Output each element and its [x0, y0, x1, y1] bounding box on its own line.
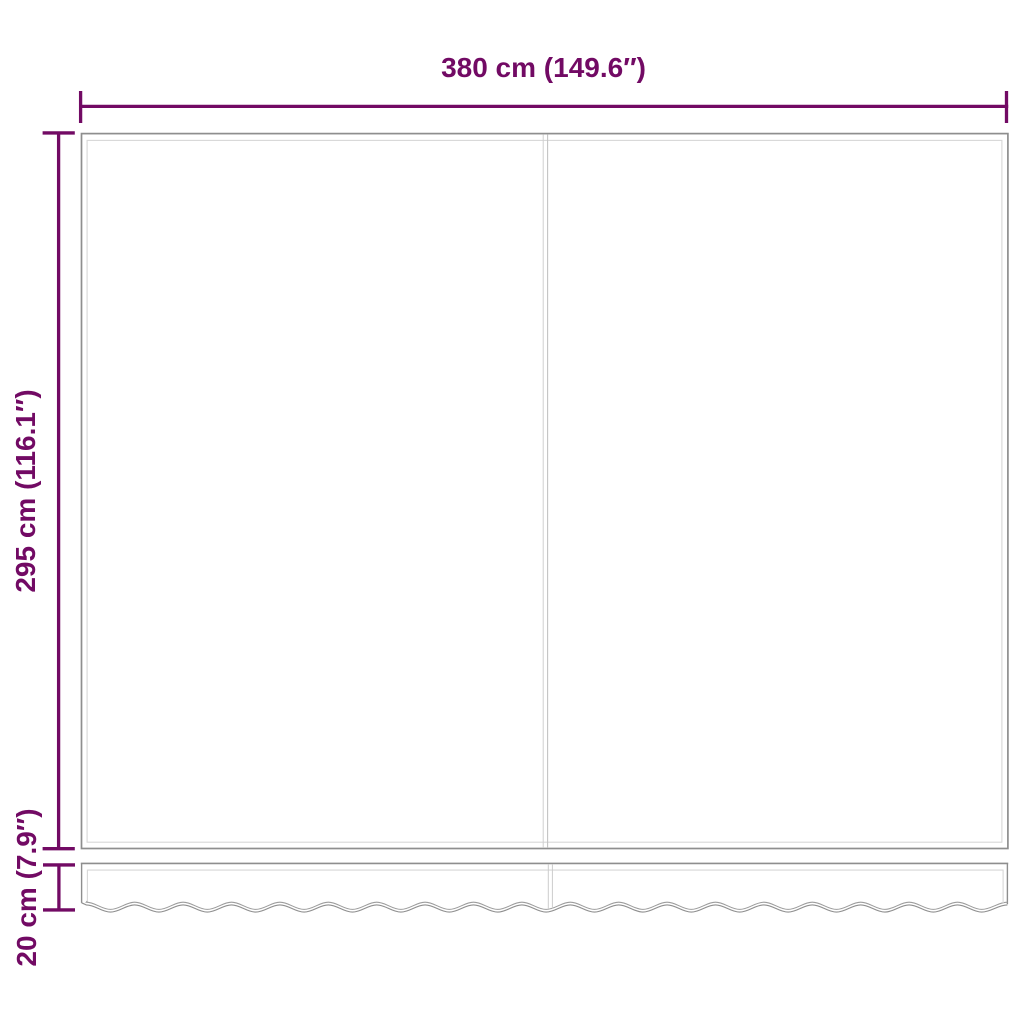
- svg-text:295 cm (116.1″): 295 cm (116.1″): [10, 389, 41, 592]
- svg-text:20 cm (7.9″): 20 cm (7.9″): [11, 808, 42, 966]
- svg-text:380 cm (149.6″): 380 cm (149.6″): [441, 52, 646, 83]
